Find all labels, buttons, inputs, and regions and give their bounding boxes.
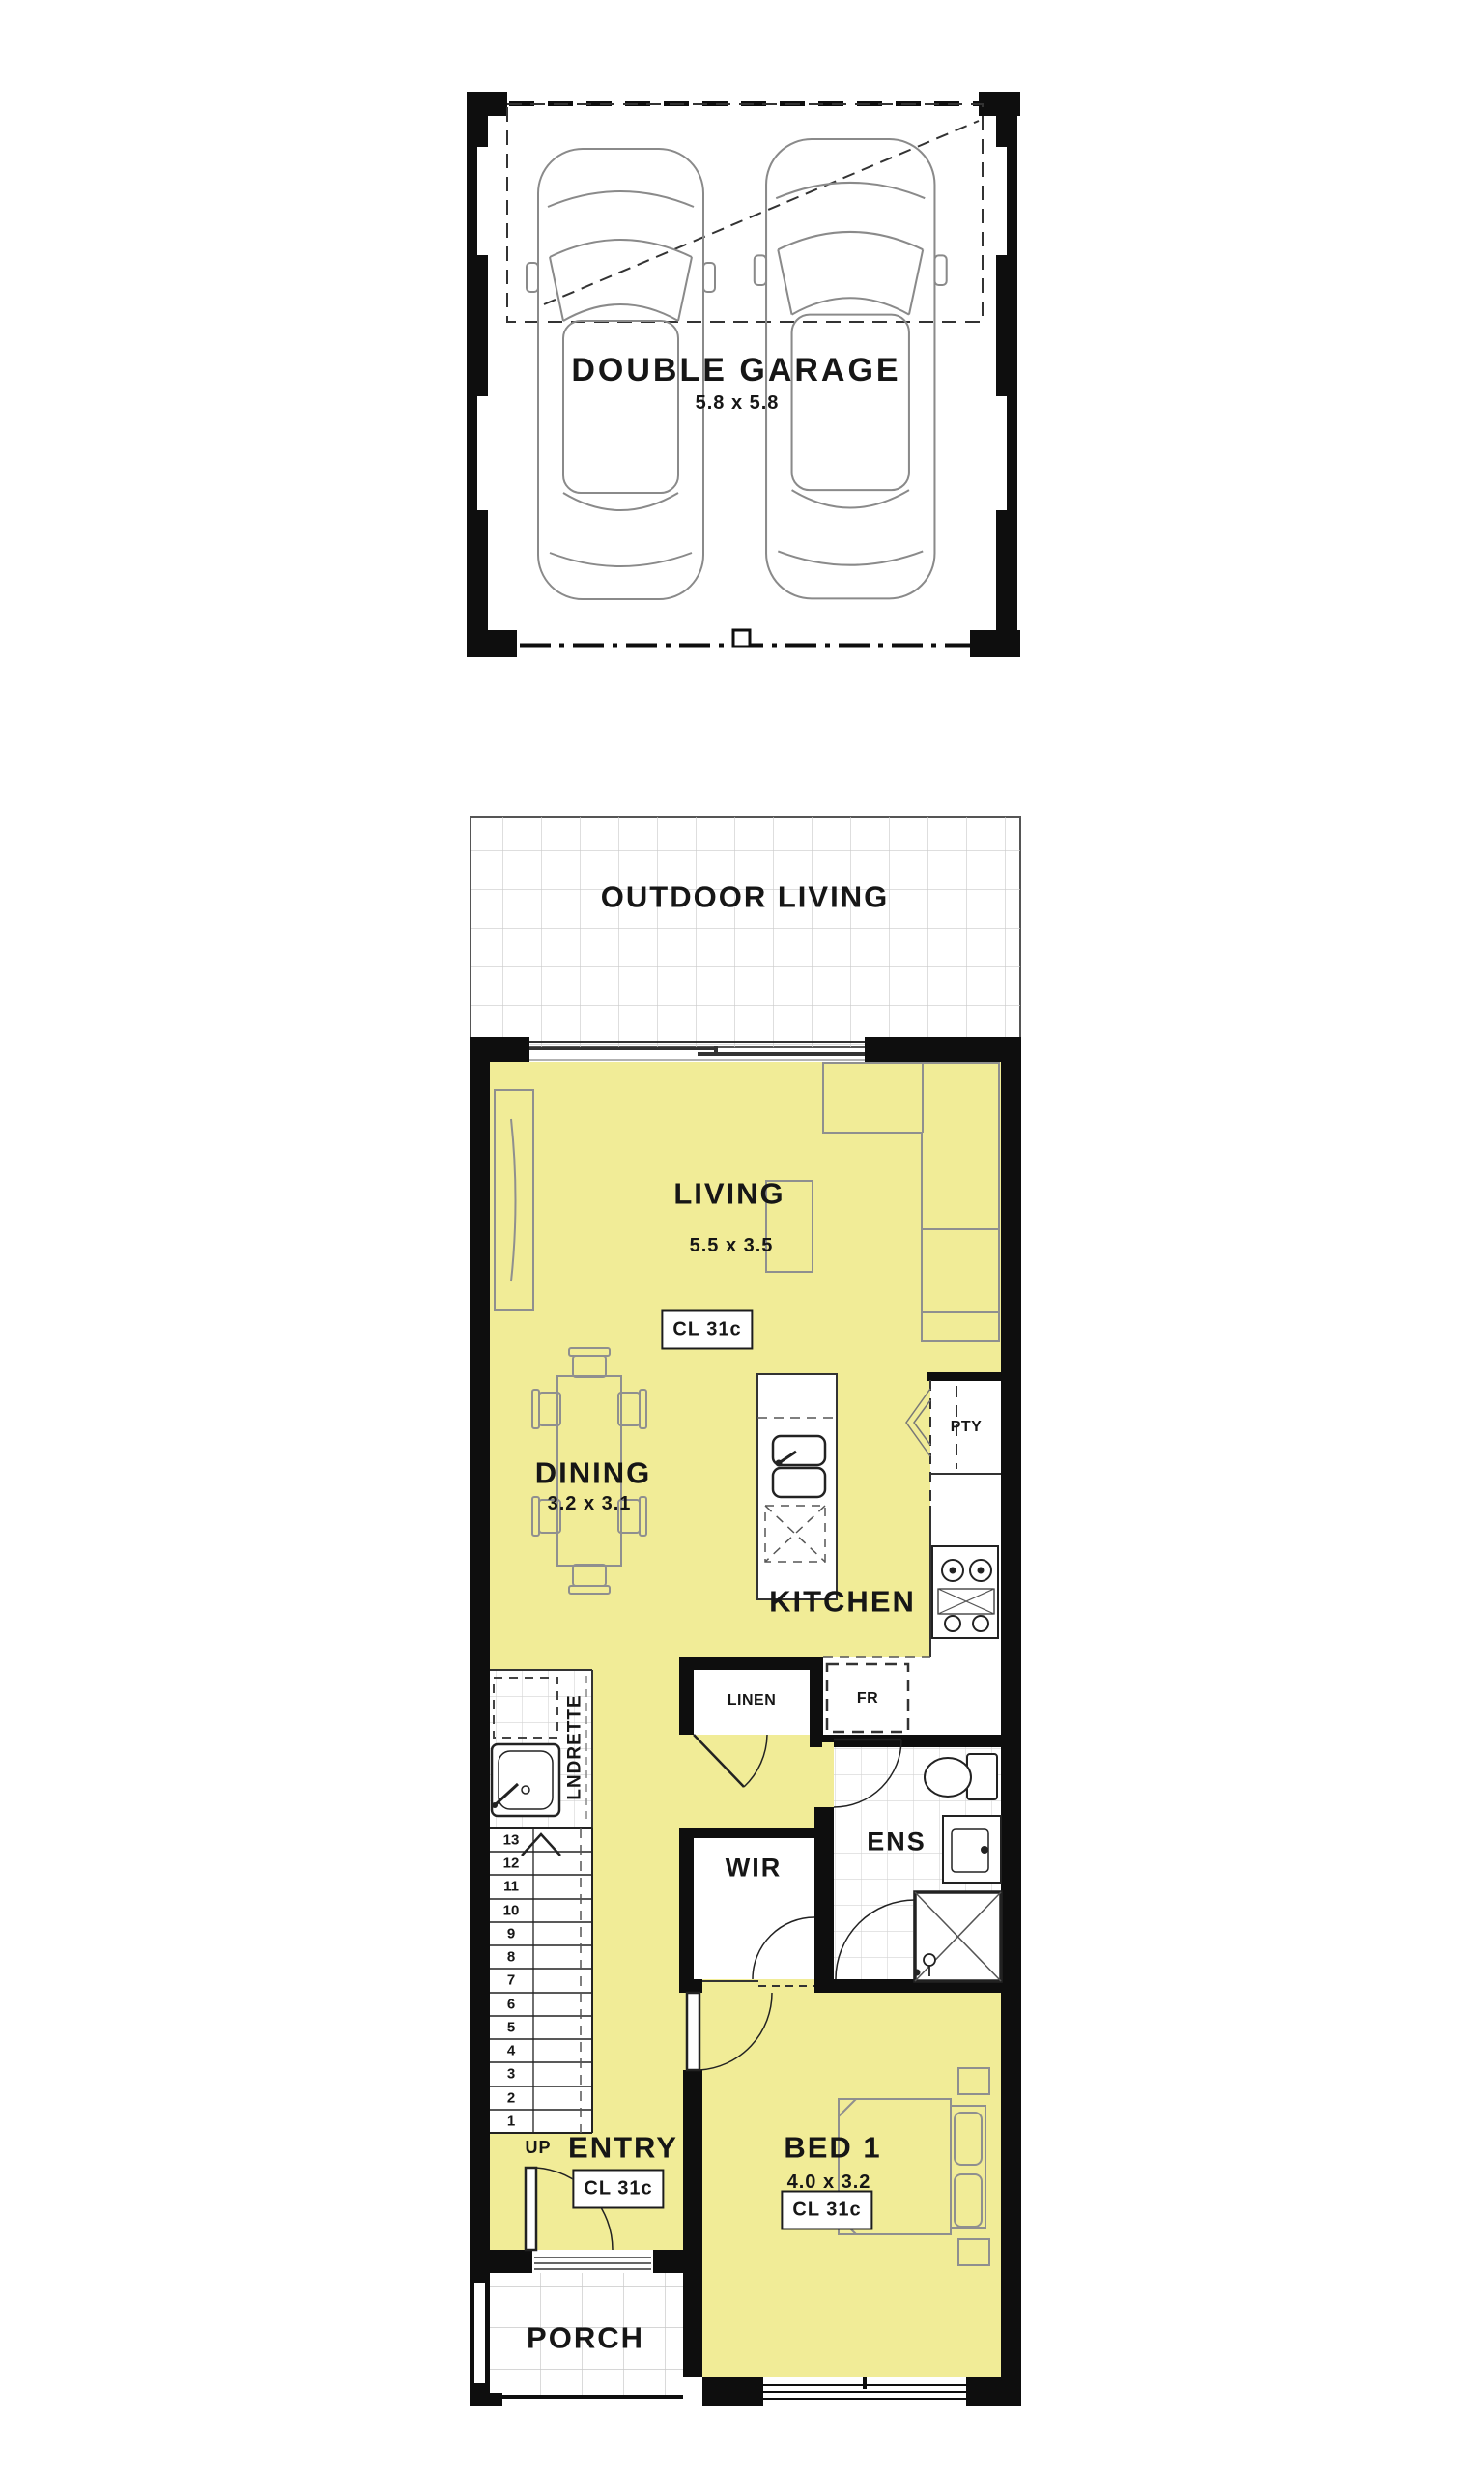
ensuite-label: ENS <box>867 1829 927 1855</box>
kitchen-label: KITCHEN <box>769 1587 916 1617</box>
floor-plan-page: DOUBLE GARAGE 5.8 x 5.8 OUTDOOR LIVING L… <box>0 0 1484 2474</box>
pantry-label: PTY <box>951 1420 983 1435</box>
dining-dims: 3.2 x 3.1 <box>548 1494 632 1513</box>
bed1-label: BED 1 <box>784 2133 881 2163</box>
linen-label: LINEN <box>728 1693 777 1709</box>
stairs-up-label: UP <box>525 2139 551 2156</box>
stair-number: 9 <box>507 1927 515 1942</box>
living-dims: 5.5 x 3.5 <box>690 1236 774 1255</box>
wir-label: WIR <box>726 1855 782 1882</box>
stove-icon <box>932 1546 998 1638</box>
living-label: LIVING <box>673 1179 785 1209</box>
stair-number: 13 <box>503 1833 520 1848</box>
stair-number: 12 <box>503 1856 520 1871</box>
living-ceiling-tag: CL 31c <box>661 1310 753 1350</box>
stair-number: 6 <box>507 1998 515 2012</box>
porch-label: PORCH <box>527 2323 644 2353</box>
stair-number: 8 <box>507 1950 515 1965</box>
entry-door-sill <box>532 2253 653 2270</box>
entry-label: ENTRY <box>568 2133 678 2163</box>
garage-label: DOUBLE GARAGE <box>571 354 900 387</box>
stair-number: 5 <box>507 2021 515 2035</box>
stair-number: 11 <box>503 1880 519 1894</box>
vanity-icon <box>943 1816 1001 1883</box>
toilet-icon <box>925 1754 997 1799</box>
stair-number: 1 <box>507 2114 515 2129</box>
stair-number: 4 <box>507 2044 515 2058</box>
stair-number: 10 <box>503 1904 520 1918</box>
fridge-label: FR <box>857 1691 878 1707</box>
outdoor-living-area <box>471 817 1020 1047</box>
bed1-dims: 4.0 x 3.2 <box>787 2172 871 2192</box>
garage-dims: 5.8 x 5.8 <box>696 393 780 413</box>
island-bench <box>757 1374 837 1599</box>
bed1-window <box>763 2377 966 2406</box>
bed1-ceiling-tag: CL 31c <box>781 2191 872 2230</box>
stair-number: 7 <box>507 1973 515 1988</box>
dining-label: DINING <box>535 1458 652 1488</box>
outdoor-living-label: OUTDOOR LIVING <box>601 882 889 912</box>
entry-ceiling-tag: CL 31c <box>572 2170 664 2209</box>
laundry-label: LNDRETTE <box>566 1694 585 1799</box>
stair-number: 2 <box>507 2091 515 2106</box>
laundry-tub-icon <box>492 1744 559 1816</box>
garage-door-overhang <box>507 104 983 322</box>
stair-number: 3 <box>507 2067 515 2082</box>
